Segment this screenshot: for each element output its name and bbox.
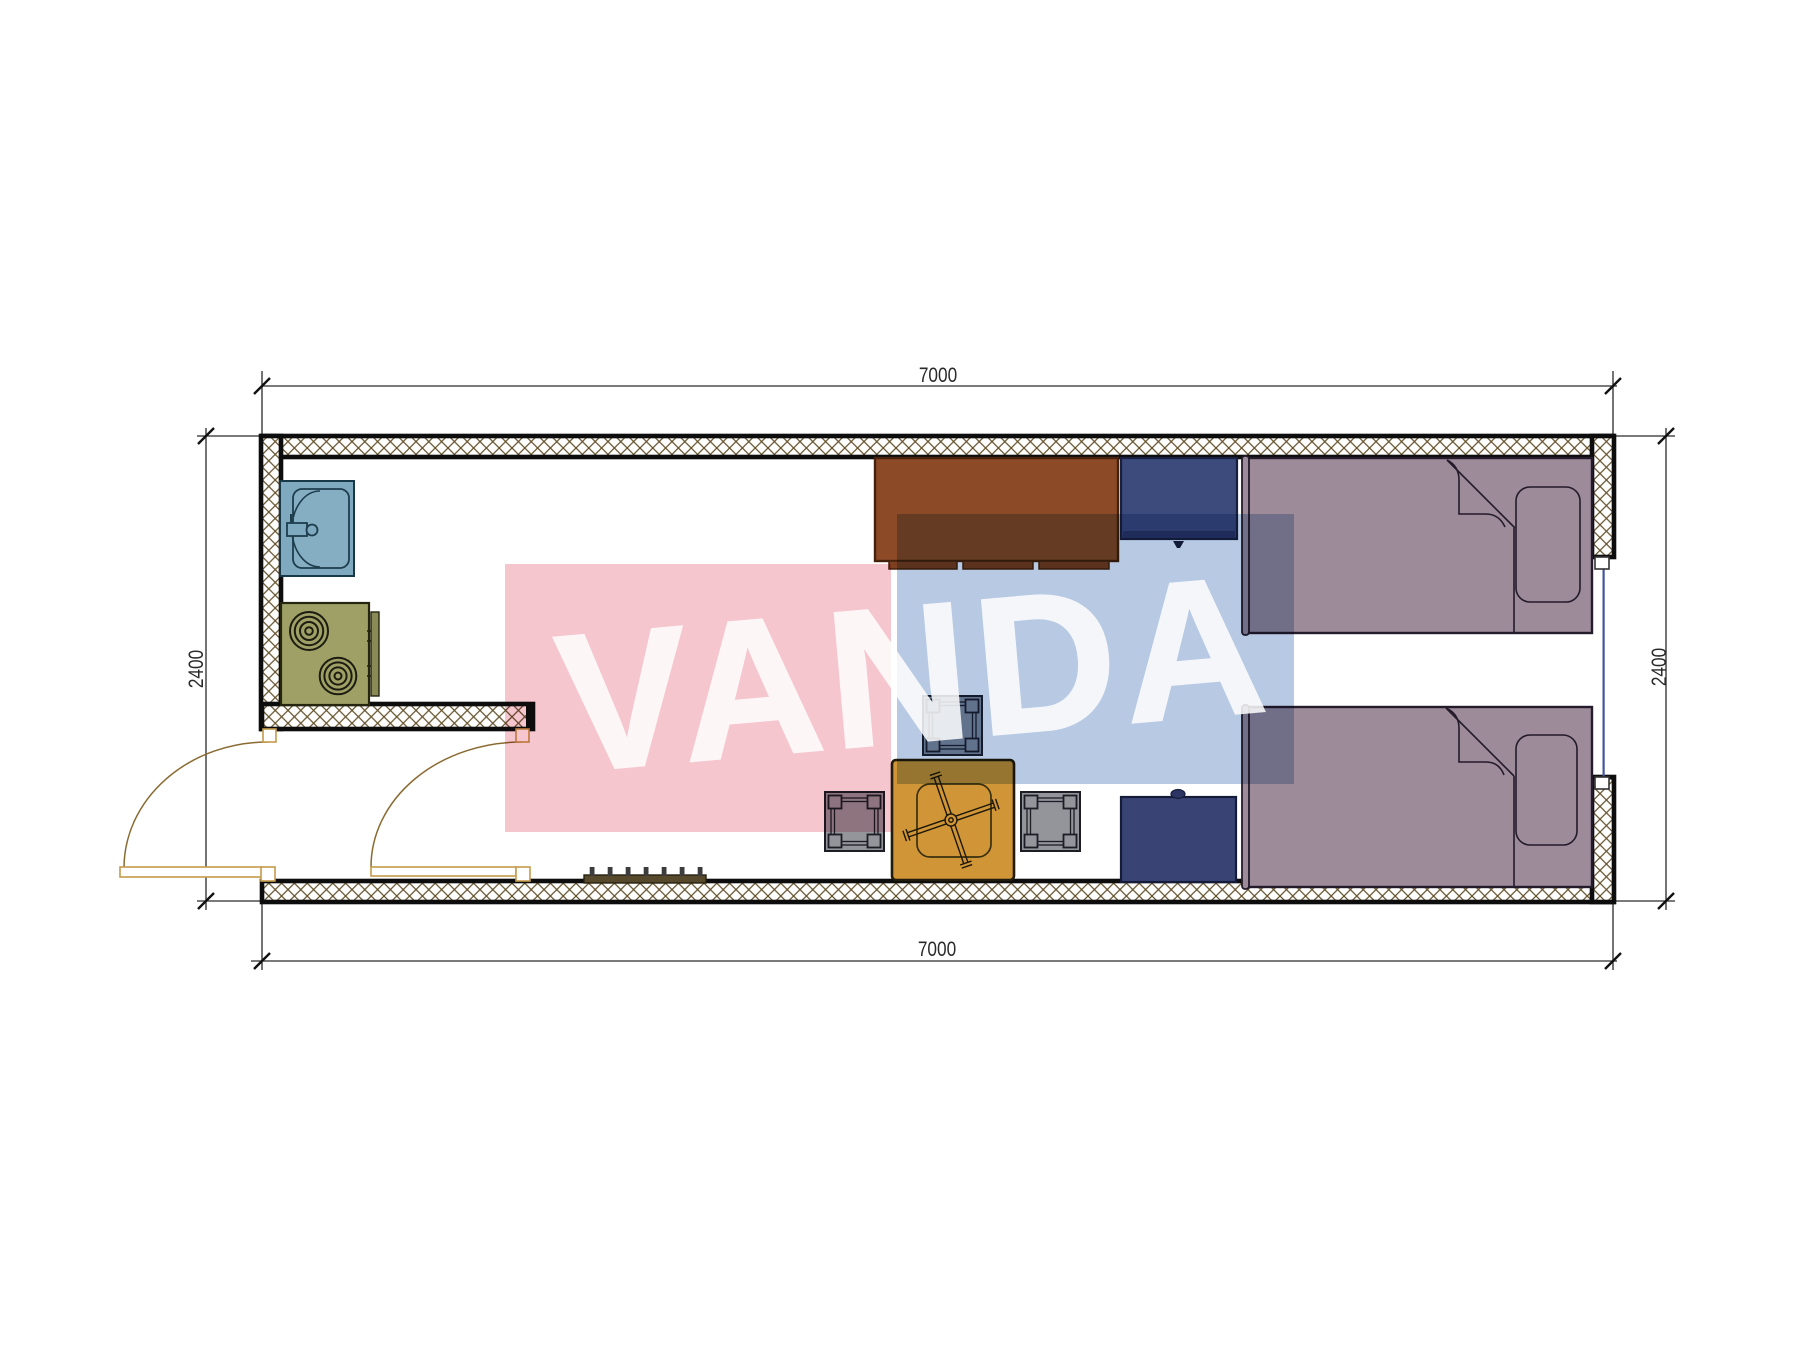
svg-text:2400: 2400: [186, 650, 209, 688]
svg-text:2400: 2400: [1649, 648, 1672, 686]
svg-text:7000: 7000: [918, 939, 956, 962]
svg-text:7000: 7000: [919, 365, 957, 388]
